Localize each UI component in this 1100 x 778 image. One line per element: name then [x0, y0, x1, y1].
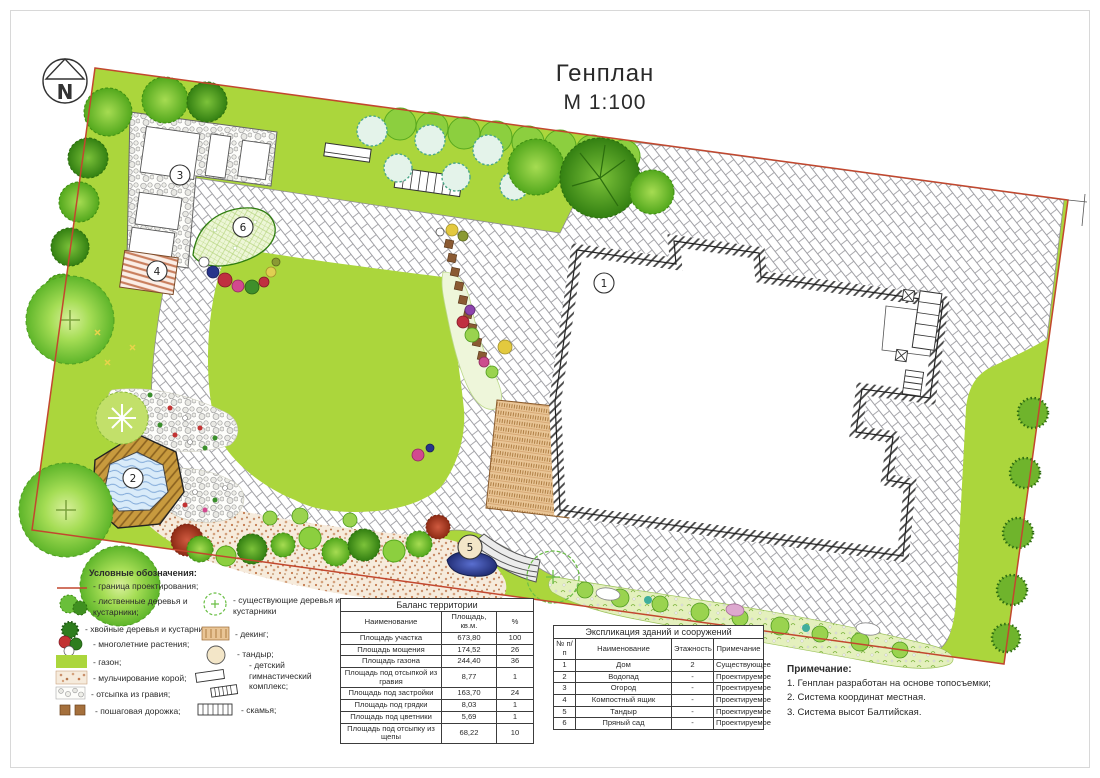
table-row: Площадь под грядки8,031	[341, 700, 534, 712]
table-row: Площадь под отсыпку из щепы68,2210	[341, 723, 534, 743]
marker-tandoor: 5	[467, 542, 474, 554]
north-arrow-icon: N	[43, 59, 87, 104]
notes-block: Примечание: 1. Генплан разработан на осн…	[787, 662, 1077, 720]
note-line: 3. Система высот Балтийская.	[787, 706, 1077, 720]
table-row: Площадь под застройки163,7024	[341, 688, 534, 700]
deciduous-trees-icon	[57, 593, 91, 621]
notes-header: Примечание:	[787, 662, 1077, 677]
tandoor-icon	[205, 644, 227, 668]
legend-header: Условные обозначения:	[89, 568, 197, 578]
legend-label: - многолетние растения;	[93, 639, 213, 650]
svg-text:N: N	[57, 80, 74, 104]
legend-label: - декинг;	[235, 629, 335, 640]
marker-compost: 4	[154, 266, 161, 278]
legend-label: - скамья;	[241, 705, 341, 716]
plan-scale: М 1:100	[455, 91, 755, 115]
marker-spice-garden: 6	[240, 222, 247, 234]
note-line: 2. Система координат местная.	[787, 691, 1077, 705]
marker-garden: 3	[177, 170, 184, 182]
table-row: Площадь мощения174,5226	[341, 644, 534, 656]
note-line: 1. Генплан разработан на основе топосъем…	[787, 677, 1077, 691]
explication-table-title: Экспликация зданий и сооружений	[554, 626, 764, 639]
table-row: 5Тандыр-Проектируемое	[554, 706, 764, 718]
table-row: Площадь участка673,80100	[341, 632, 534, 644]
table-row: 1Дом2Существующее	[554, 659, 764, 671]
gym-complex-icon	[193, 666, 245, 702]
existing-trees-icon	[201, 590, 229, 620]
explication-col-header: Наименование	[576, 639, 672, 659]
table-row: 4Компостный ящик-Проектируемое	[554, 694, 764, 706]
plan-title: Генплан	[455, 60, 755, 88]
page-title: Генплан М 1:100	[455, 60, 755, 115]
table-row: Площадь газона244,4036	[341, 656, 534, 668]
balance-col-header: Площадь, кв.м.	[442, 612, 497, 632]
bench-icon	[197, 702, 235, 720]
balance-table-title: Баланс территории	[341, 599, 534, 612]
stepping-path-icon	[59, 703, 89, 719]
gravel-icon	[55, 686, 87, 703]
legend: Условные обозначения: - граница проектир…	[55, 568, 385, 733]
table-row: 6Пряный сад-Проектируемое	[554, 718, 764, 730]
table-row: 3Огород-Проектируемое	[554, 683, 764, 695]
balance-col-header: Наименование	[341, 612, 442, 632]
legend-label: - лиственные деревья и кустарники;	[93, 596, 201, 617]
decking-icon	[201, 626, 231, 644]
legend-label: - существующие деревья и кустарники	[233, 595, 345, 616]
explication-table: Экспликация зданий и сооружений № п/п На…	[553, 625, 764, 730]
explication-col-header: Примечание	[714, 639, 764, 659]
balance-col-header: %	[497, 612, 534, 632]
legend-label: - граница проектирования;	[93, 581, 218, 592]
boundary-tick	[1068, 194, 1087, 226]
marker-house: 1	[601, 278, 608, 290]
explication-col-header: № п/п	[554, 639, 576, 659]
legend-label: - детский гимнастический комплекс;	[249, 660, 341, 692]
balance-table: Баланс территории Наименование Площадь, …	[340, 598, 534, 744]
table-row: Площадь под цветники5,691	[341, 711, 534, 723]
table-row: Площадь под отсыпкой из гравия8,771	[341, 667, 534, 687]
marker-waterfall: 2	[130, 473, 137, 485]
table-row: 2Водопад-Проектируемое	[554, 671, 764, 683]
explication-col-header: Этажность	[672, 639, 714, 659]
legend-label: - тандыр;	[237, 649, 337, 660]
